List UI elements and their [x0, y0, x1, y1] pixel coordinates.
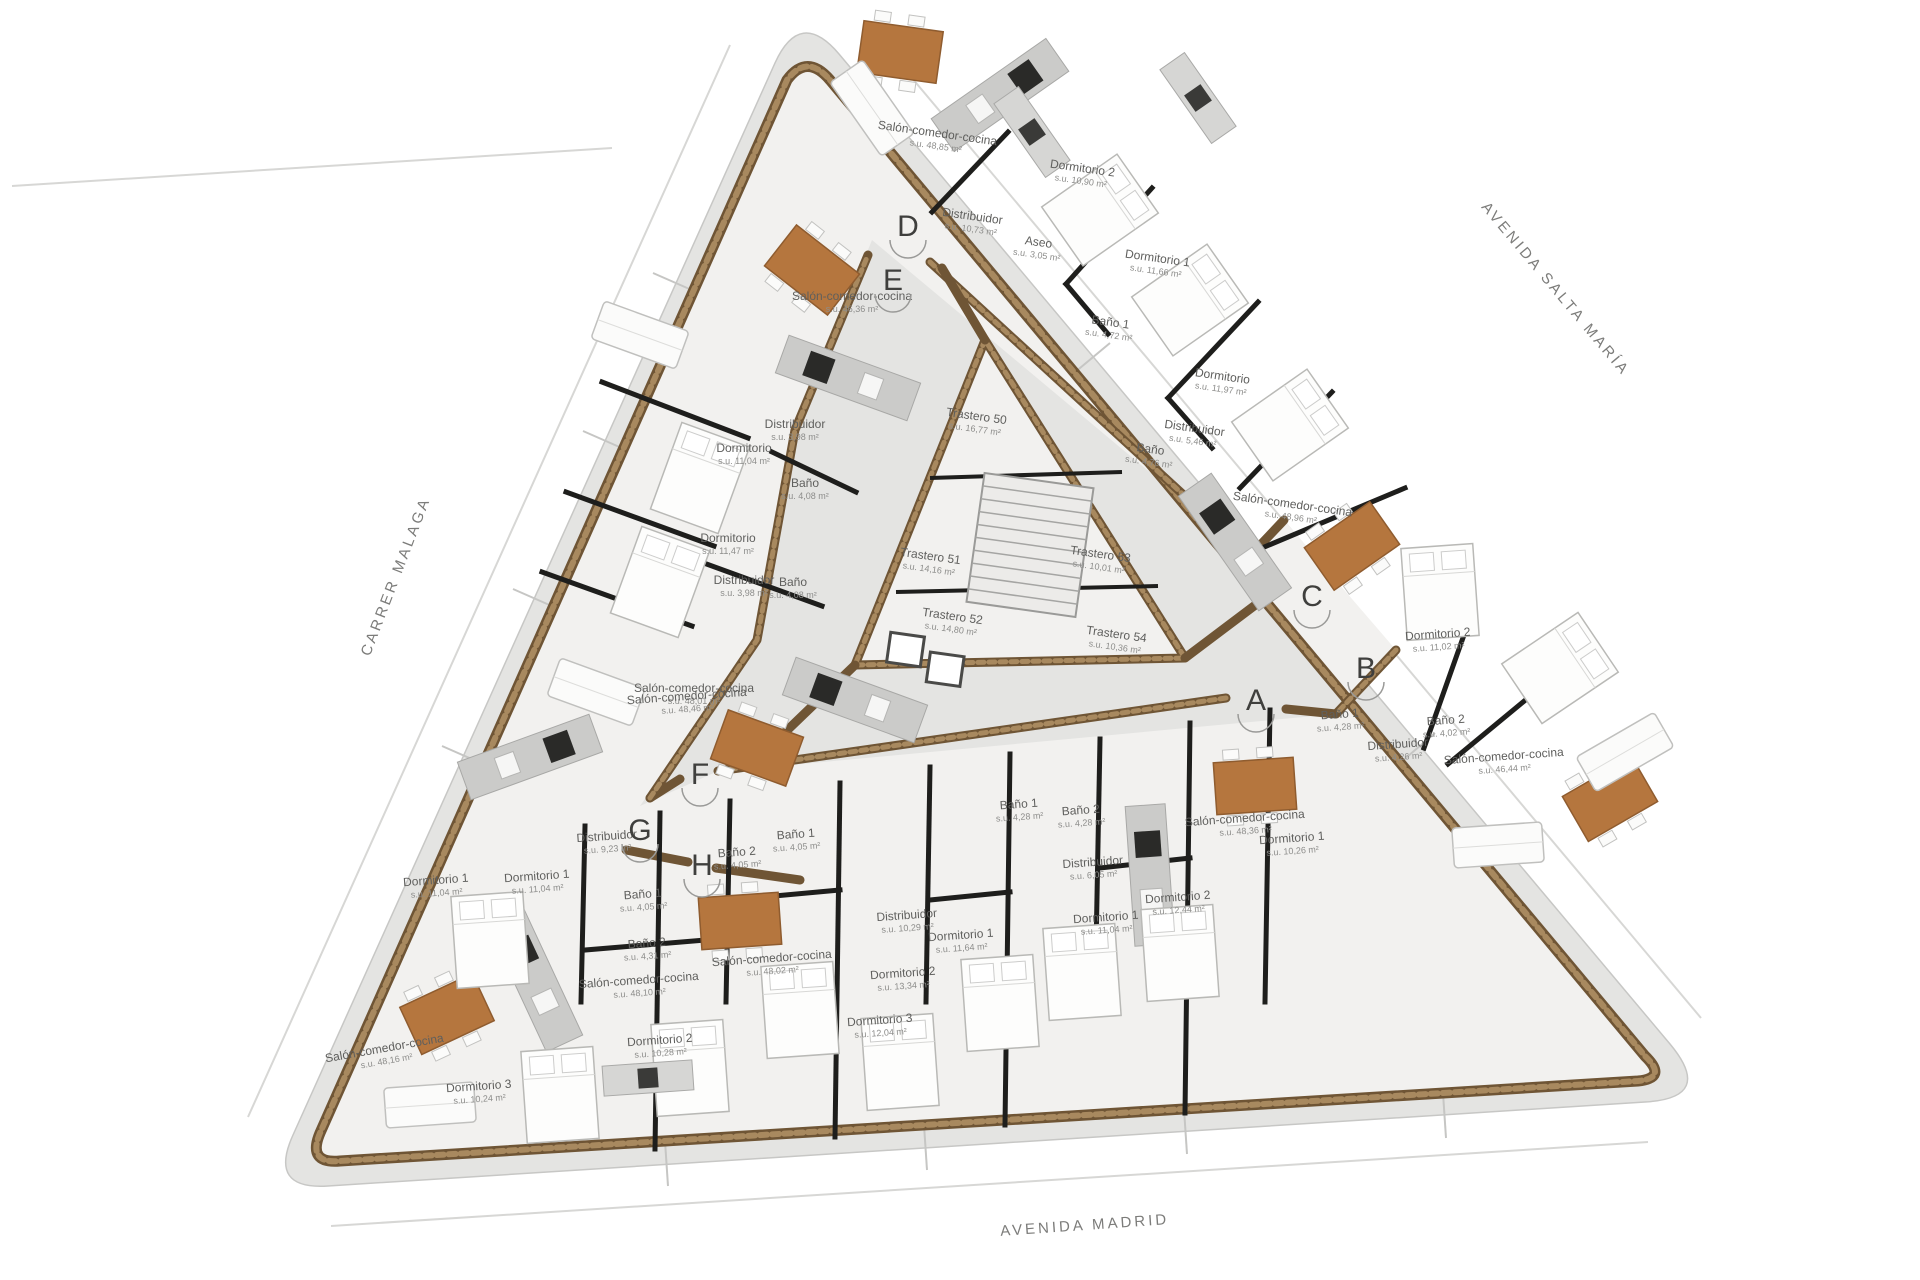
room-label-group: Baño 1s.u. 4,72 m² [1085, 312, 1136, 343]
room-label-group: Baño 2s.u. 4,05 m² [713, 843, 762, 871]
room-label-group: Baño 1s.u. 4,05 m² [619, 885, 668, 913]
room-label-group: Baño 1s.u. 4,05 m² [772, 825, 821, 853]
room-area: s.u. 3,98 m² [771, 432, 819, 442]
entrance-letter: E [883, 264, 903, 297]
room-label-group: Baño 2s.u. 4,28 m² [1057, 801, 1106, 829]
room-label-group: Dormitorio 1s.u. 11,66 m² [1123, 247, 1192, 281]
room-name: Baño 1 [776, 826, 815, 843]
room-label-group: Distribuidors.u. 5,46 m² [1162, 417, 1226, 450]
room-label-group: Distribuidors.u. 3,98 m² [714, 573, 775, 598]
bed [1043, 924, 1121, 1021]
cabinet [602, 1060, 694, 1096]
room-name: Dormitorio [700, 531, 756, 545]
room-label-group: Dormitorio 2s.u. 13,34 m² [870, 964, 937, 994]
room-label-group: Dormitorios.u. 11,97 m² [1193, 365, 1252, 398]
room-label-group: Dormitorios.u. 11,47 m² [700, 531, 756, 556]
room-name: Baño 1 [999, 796, 1038, 813]
room-area: s.u. 4,08 m² [769, 590, 817, 600]
room-area: s.u. 3,98 m² [720, 588, 768, 598]
cabinet [1160, 53, 1236, 144]
room-label-group: Dormitorio 1s.u. 11,64 m² [928, 926, 995, 956]
room-area: s.u. 46,36 m² [826, 304, 879, 314]
street-label: AVENIDA MADRID [1000, 1211, 1170, 1240]
entrance-letter: D [897, 210, 919, 243]
room-label-group: Dormitorio 2s.u. 10,28 m² [627, 1031, 694, 1061]
room-label-group: Distribuidors.u. 4,26 m² [1367, 735, 1429, 764]
room-label-group: Baño 2s.u. 4,31 m² [623, 934, 672, 962]
bed [761, 962, 839, 1059]
floor-plan-svg: Salón-comedor-cocinas.u. 48,85 m²Dormito… [0, 0, 1920, 1280]
room-label-group: Dormitorio 1s.u. 11,04 m² [504, 867, 571, 897]
room-label-group: Salón-comedor-cocinas.u. 48,96 m² [1231, 489, 1354, 531]
entrance-letter: F [691, 758, 709, 791]
room-label-group: Dormitorio 3s.u. 12,04 m² [847, 1011, 914, 1041]
room-name: Baño 1 [623, 886, 662, 903]
room-label-group: Dormitorios.u. 11,04 m² [716, 441, 772, 466]
room-name: Distribuidor [765, 417, 826, 431]
room-label-group: Dormitorio 2s.u. 11,02 m² [1405, 625, 1472, 655]
room-label-group: Distribuidors.u. 6,05 m² [1062, 853, 1124, 882]
room-name: Baño 2 [627, 935, 666, 952]
room-name: Baño [791, 476, 819, 490]
entrance-letter: A [1246, 684, 1266, 717]
sofa [1452, 822, 1545, 868]
bed [451, 892, 529, 989]
entrance-letter: B [1356, 652, 1376, 685]
room-area: s.u. 4,08 m² [781, 491, 829, 501]
bed [1141, 905, 1219, 1002]
room-label-group: Dormitorio 1s.u. 11,04 m² [1073, 908, 1140, 938]
entrance-letter: G [628, 814, 651, 847]
room-label-group: Baño 1s.u. 4,28 m² [1316, 705, 1365, 733]
room-area: s.u. 11,04 m² [718, 456, 770, 466]
room-label-group: Dormitorio 2s.u. 12,44 m² [1145, 888, 1212, 918]
street-label: AVENIDA SALTA MARÍA [1478, 199, 1633, 379]
room-name: Baño 1 [1320, 706, 1359, 723]
room-area: s.u. 4,02 m² [1423, 726, 1471, 739]
street-label: CARRER MALAGA [358, 494, 434, 658]
room-label-group: Baño 1s.u. 4,28 m² [995, 795, 1044, 823]
entrance-letter: H [691, 849, 713, 882]
entrance-letter: C [1301, 580, 1323, 613]
room-name: Baño [779, 575, 807, 589]
room-name: Baño 2 [717, 844, 756, 861]
room-name: Dormitorio [716, 441, 772, 455]
room-area: s.u. 11,47 m² [702, 546, 754, 556]
bed [521, 1047, 599, 1144]
room-area: s.u. 3,05 m² [1013, 247, 1061, 264]
room-label-group: Dormitorio 1s.u. 11,04 m² [403, 871, 470, 901]
room-label-group: Baño 2s.u. 4,02 m² [1422, 711, 1471, 739]
bed [1232, 369, 1349, 481]
room-name: Baño 2 [1426, 712, 1465, 729]
room-name: Baño 2 [1061, 802, 1100, 819]
bed [961, 955, 1039, 1052]
room-label-group: Dormitorio 3s.u. 10,24 m² [446, 1077, 513, 1107]
room-name: Distribuidor [714, 573, 775, 587]
room-label-group: Distribuidors.u. 3,98 m² [765, 417, 826, 442]
